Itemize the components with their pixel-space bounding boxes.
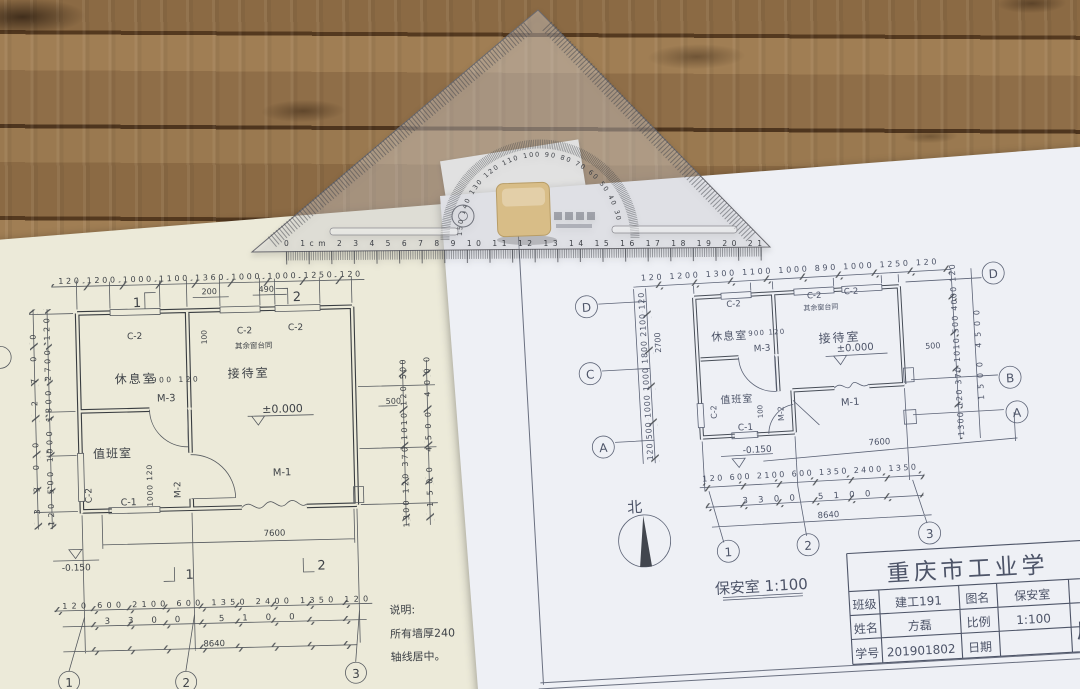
axis-label: 1 [65,676,73,689]
dim-label: 1300 120 370 1010 120 500 [398,359,411,527]
dim-label: 7600 [264,528,286,539]
axis-label: D [988,267,998,281]
field-value: 201901802 [886,642,955,660]
window-note: 其余窗台同 [803,302,838,313]
level-label: ±0.000 [262,402,303,416]
level-label: -0.150 [62,563,92,574]
field-value: 建工191 [895,593,943,610]
field-value: 方磊 [907,617,932,633]
dim-label: 1500 4500 [972,310,986,400]
drawing-caption: 保安室 1:100 [714,575,808,601]
door-label: M-1 [273,467,292,478]
window-label: C-2 [726,299,741,310]
field-label: 图名 [965,590,990,606]
room-label: 接待室 [227,365,269,381]
level-label: -0.150 [742,445,772,457]
section-flag-label: 1 [133,296,142,311]
ruler-slot [612,226,737,233]
window-note: 其余窗台同 [235,340,273,351]
door-label: M-1 [841,397,860,409]
level-label: ±0.000 [836,342,874,355]
axis-label: A [1013,406,1023,420]
room-label: 值班室 [93,445,132,461]
field-value: 1:100 [1016,611,1051,627]
dim-label: 500 [925,341,941,351]
door-label: M-3 [753,344,770,355]
window-label: C-2 [844,287,859,298]
left-floor-plan: 120 1200 1000 1100 1360 1000 1000 1250 1… [0,267,456,689]
window-label: C-2 [288,323,304,333]
axis-label: 2 [182,676,190,689]
dim-label: 900 120 [748,328,784,338]
axis-label: 1 [724,545,732,559]
field-label: 班级 [852,597,877,612]
dim-label: 8640 [817,510,839,521]
door-label: M-2 [776,406,786,421]
dim-label: 8640 [203,639,225,650]
north-arrow: 北 [616,497,672,569]
room-label: 休息室 [115,371,157,387]
right-floor-plan: 120 1200 1300 1100 1000 890 1000 1250 12… [513,194,1080,689]
dim-label: 2700 [653,332,663,353]
dim-label: 1000 120 [145,464,155,506]
partial-character: 成 [1075,615,1080,644]
door-label: M-3 [157,393,176,404]
field-label: 日期 [968,640,993,655]
left-plan-dim-lines [0,272,442,689]
north-label: 北 [627,498,643,517]
section-flag-label: 2 [293,290,302,305]
dim-label: 3300 2700 [29,334,42,514]
ruler-mm-ticks [286,252,762,256]
axis-label: 3 [925,527,933,541]
axis-label: 3 [352,667,360,681]
window-label: C-2 [84,488,94,504]
note-text: 所有墙厚240 [390,625,455,641]
photo-of-drawings: 120 1200 1000 1100 1360 1000 1000 1250 1… [0,0,1080,689]
axis-label: D [582,301,592,315]
field-label: 比例 [966,615,991,630]
axis-label: 2 [804,539,812,553]
dim-label: 7600 [868,437,890,448]
axis-label: A [599,441,609,455]
note-text: 轴线居中。 [390,649,445,664]
axis-label: C [586,367,595,381]
note-text: 说明: [389,602,415,617]
left-plan-walls [74,304,364,515]
window-label: C-2 [807,291,822,302]
axis-label: B [1006,371,1015,385]
room-label: 休息室 [711,328,748,344]
window-label: C-2 [237,326,253,336]
ruler-slot [330,228,458,235]
field-value: 保安室 [1014,586,1051,603]
dim-label: 100 [756,405,765,419]
field-label: 姓名 [853,620,878,636]
window-label: C-2 [709,405,719,419]
room-label: 值班室 [720,392,754,407]
dim-label: 490 [258,285,273,294]
window-label: C-1 [121,497,137,508]
dim-label: 100 [200,330,209,345]
window-label: C-2 [127,332,143,342]
dim-label: 1300 120 370 1010 500 4000 120 [948,264,967,436]
section-flag-label: 2 [317,558,326,573]
section-flag-label: 1 [185,568,194,583]
caption-text: 保安室 1:100 [714,575,808,598]
field-label: 学号 [855,645,880,661]
window-label: C-1 [738,423,754,434]
dim-label: 200 [202,287,217,296]
door-label: M-2 [173,481,183,498]
